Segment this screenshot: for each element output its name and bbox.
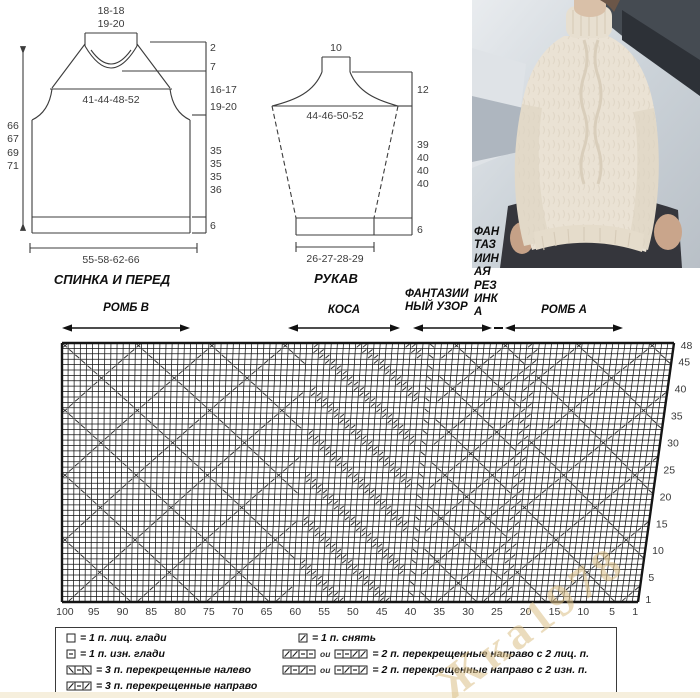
svg-text:85: 85 (145, 606, 157, 618)
knit-stitch-icon (66, 633, 76, 643)
svg-text:45: 45 (678, 356, 690, 368)
svg-text:30: 30 (667, 437, 679, 449)
legend-text: = 2 п. перекрещенные направо с 2 лиц. п. (372, 648, 589, 660)
svg-text:50: 50 (347, 606, 359, 618)
legend-text: = 3 п. перекрещенные налево (96, 664, 251, 676)
svg-text:95: 95 (88, 606, 100, 618)
svg-text:15: 15 (549, 606, 561, 618)
legend-text: = 1 п. изн. глади (80, 648, 165, 660)
cross-3-right-icon (66, 681, 92, 691)
svg-text:100: 100 (56, 606, 74, 618)
svg-text:48: 48 (681, 340, 693, 352)
cross-2-knit-icon-b (334, 649, 368, 659)
svg-text:20: 20 (520, 606, 532, 618)
svg-text:25: 25 (663, 464, 675, 476)
page-bottom-strip (0, 692, 700, 698)
cross-3-left-icon (66, 665, 92, 675)
legend-text: = 2 п. перекрещенные направо с 2 изн. п. (372, 664, 587, 676)
svg-text:30: 30 (462, 606, 474, 618)
purl-stitch-icon (66, 649, 76, 659)
legend-row: = 1 п. изн. глади (66, 646, 257, 662)
svg-text:35: 35 (671, 410, 683, 422)
cross-2-purl-icon-b (334, 665, 368, 675)
svg-text:60: 60 (289, 606, 301, 618)
legend: = 1 п. лиц. глади = 1 п. изн. глади = 3 … (55, 627, 617, 695)
legend-row: ou = 2 п. перекрещенные направо с 2 лиц.… (282, 646, 589, 662)
knitting-pattern-page: 18-18 19-20 41-44-48-52 55-58-62-66 66 6… (0, 0, 700, 698)
cross-2-knit-icon-a (282, 649, 316, 659)
or-word: ou (320, 649, 330, 659)
svg-text:15: 15 (656, 518, 668, 530)
svg-text:10: 10 (577, 606, 589, 618)
svg-text:1: 1 (632, 606, 638, 618)
legend-row: = 1 п. снять (282, 630, 589, 646)
svg-text:5: 5 (609, 606, 615, 618)
slip-stitch-icon (298, 633, 308, 643)
or-word: ou (320, 665, 330, 675)
svg-text:1: 1 (645, 594, 651, 606)
stitch-chart: 4845403530252015105110095908580757065605… (0, 0, 700, 698)
svg-text:25: 25 (491, 606, 503, 618)
svg-text:35: 35 (433, 606, 445, 618)
svg-text:65: 65 (261, 606, 273, 618)
legend-text: = 3 п. перекрещенные направо (96, 680, 257, 692)
legend-text: = 1 п. снять (312, 632, 376, 644)
svg-text:90: 90 (117, 606, 129, 618)
svg-text:40: 40 (405, 606, 417, 618)
svg-text:5: 5 (648, 572, 654, 584)
svg-text:20: 20 (660, 491, 672, 503)
legend-right-column: = 1 п. снять ou = 2 п. перекрещенные нап… (282, 630, 589, 678)
svg-text:70: 70 (232, 606, 244, 618)
legend-row: = 3 п. перекрещенные налево (66, 662, 257, 678)
svg-text:75: 75 (203, 606, 215, 618)
legend-left-column: = 1 п. лиц. глади = 1 п. изн. глади = 3 … (66, 630, 257, 694)
legend-row: ou = 2 п. перекрещенные направо с 2 изн.… (282, 662, 589, 678)
svg-text:80: 80 (174, 606, 186, 618)
svg-text:45: 45 (376, 606, 388, 618)
cross-2-purl-icon-a (282, 665, 316, 675)
legend-text: = 1 п. лиц. глади (80, 632, 167, 644)
svg-text:40: 40 (675, 383, 687, 395)
svg-text:55: 55 (318, 606, 330, 618)
legend-row: = 1 п. лиц. глади (66, 630, 257, 646)
svg-text:10: 10 (652, 545, 664, 557)
